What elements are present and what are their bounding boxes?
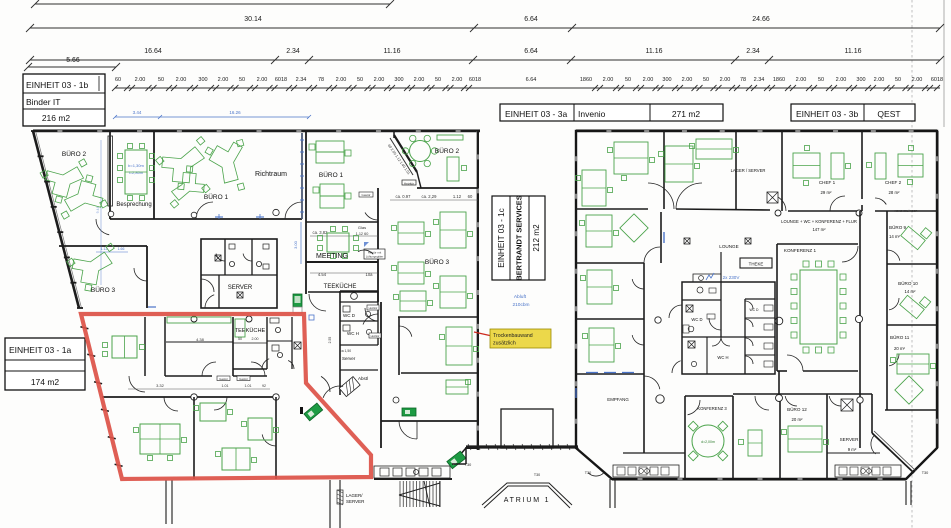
svg-text:SERVER: SERVER — [228, 285, 253, 291]
svg-text:1.12: 1.12 — [453, 194, 462, 199]
svg-text:2.00: 2.00 — [336, 77, 347, 83]
svg-text:9.44: 9.44 — [96, 207, 100, 214]
svg-text:WC H: WC H — [347, 331, 359, 336]
svg-text:Besprechung: Besprechung — [116, 202, 151, 208]
svg-text:2.00: 2.00 — [682, 77, 693, 83]
svg-text:50: 50 — [239, 77, 245, 83]
svg-text:ca. 2,29: ca. 2,29 — [422, 194, 438, 199]
svg-text:ATRIUM 1: ATRIUM 1 — [504, 497, 551, 504]
svg-text:2.00: 2.00 — [836, 77, 847, 83]
svg-text:LAGER / SERVER: LAGER / SERVER — [731, 168, 766, 173]
svg-text:2.55: 2.55 — [328, 337, 332, 344]
svg-text:Trockenbauwand: Trockenbauwand — [493, 333, 533, 339]
svg-text:BÜRO 3: BÜRO 3 — [91, 286, 116, 294]
svg-text:1.66: 1.66 — [118, 247, 125, 251]
svg-text:1.01: 1.01 — [245, 384, 252, 388]
svg-text:Heizkör: Heizkör — [404, 182, 414, 186]
svg-text:2.00: 2.00 — [796, 77, 807, 83]
svg-text:Lüftungsgitter: Lüftungsgitter — [366, 255, 384, 259]
svg-text:Heizkör: Heizkör — [369, 306, 378, 310]
svg-text:ca. 0.97: ca. 0.97 — [396, 194, 412, 199]
svg-text:2.00: 2.00 — [252, 337, 259, 341]
svg-text:BÜRO 1: BÜRO 1 — [319, 171, 344, 179]
svg-text:300: 300 — [394, 77, 403, 83]
svg-text:Invenio: Invenio — [578, 109, 606, 119]
svg-text:2.00: 2.00 — [452, 77, 463, 83]
svg-text:Gastür: Gastür — [239, 377, 248, 381]
svg-text:BÜRO 2: BÜRO 2 — [62, 150, 87, 158]
svg-text:11.16: 11.16 — [845, 48, 862, 55]
svg-text:LAGER/: LAGER/ — [346, 493, 363, 498]
svg-text:WC D: WC D — [749, 308, 759, 312]
svg-text:50: 50 — [625, 77, 631, 83]
svg-text:30.14: 30.14 — [244, 16, 262, 23]
svg-text:T30: T30 — [585, 471, 592, 475]
svg-text:Abstl: Abstl — [358, 376, 368, 381]
svg-text:EINHEIT 03 - 3a: EINHEIT 03 - 3a — [505, 109, 567, 119]
svg-text:KONFERENZ 3: KONFERENZ 3 — [697, 406, 727, 411]
svg-text:6.64: 6.64 — [524, 16, 538, 23]
svg-text:WC H: WC H — [717, 355, 728, 360]
svg-text:11.16: 11.16 — [384, 48, 401, 55]
svg-text:50: 50 — [158, 77, 164, 83]
svg-text:16.26: 16.26 — [229, 110, 241, 115]
svg-text:2.00: 2.00 — [874, 77, 885, 83]
svg-text:50: 50 — [818, 77, 824, 83]
svg-text:6018: 6018 — [275, 77, 287, 83]
svg-text:Richtraum: Richtraum — [255, 171, 287, 178]
svg-text:LOUNGE: LOUNGE — [719, 244, 738, 249]
svg-text:BÜRO 3: BÜRO 3 — [425, 258, 450, 266]
svg-text:2.34: 2.34 — [746, 48, 760, 55]
svg-text:BÜRO 10: BÜRO 10 — [898, 280, 918, 286]
svg-text:KONFERENZ 1: KONFERENZ 1 — [784, 248, 817, 253]
svg-text:LOUNGE + WC + KONFERENZ + FLUR: LOUNGE + WC + KONFERENZ + FLUR — [781, 219, 857, 224]
svg-text:WC D: WC D — [343, 313, 356, 318]
svg-text:2.34: 2.34 — [286, 48, 300, 55]
svg-text:20 m²: 20 m² — [792, 417, 804, 422]
svg-text:1.01: 1.01 — [222, 384, 229, 388]
svg-text:212 m2: 212 m2 — [532, 224, 541, 252]
svg-text:300: 300 — [662, 77, 671, 83]
svg-text:14 m²: 14 m² — [905, 289, 917, 294]
svg-text:2.00: 2.00 — [912, 77, 923, 83]
svg-text:EINHEIT 03 - 1b: EINHEIT 03 - 1b — [26, 80, 88, 90]
svg-text:210cbm: 210cbm — [512, 302, 529, 308]
svg-text:TEEKÜCHE: TEEKÜCHE — [324, 283, 357, 290]
svg-text:2.00: 2.00 — [135, 77, 146, 83]
svg-text:29 m²: 29 m² — [821, 190, 833, 195]
svg-text:Gastür: Gastür — [361, 193, 370, 197]
svg-text:20 m²: 20 m² — [894, 346, 906, 351]
svg-text:14 m²: 14 m² — [889, 234, 901, 239]
svg-text:11.16: 11.16 — [646, 48, 663, 55]
svg-text:271 m2: 271 m2 — [672, 109, 701, 119]
svg-text:EINHEIT 03 - 1c: EINHEIT 03 - 1c — [497, 208, 506, 267]
svg-text:EINHEIT 03 - 1a: EINHEIT 03 - 1a — [9, 345, 71, 355]
svg-text:TEEKÜCHE: TEEKÜCHE — [235, 327, 266, 334]
svg-text:THEKE: THEKE — [749, 262, 764, 267]
svg-text:T30: T30 — [534, 473, 540, 477]
svg-text:2.00: 2.00 — [257, 77, 268, 83]
svg-text:28 m²: 28 m² — [889, 190, 901, 195]
svg-text:1860: 1860 — [773, 77, 785, 83]
svg-text:MEETING: MEETING — [316, 253, 348, 260]
svg-text:6018: 6018 — [931, 77, 943, 83]
svg-text:2.00: 2.00 — [414, 77, 425, 83]
svg-text:50: 50 — [238, 337, 242, 341]
svg-text:BÜRO 9: BÜRO 9 — [889, 224, 907, 230]
svg-text:5.66: 5.66 — [66, 57, 80, 64]
svg-text:BÜRO 2: BÜRO 2 — [435, 147, 460, 155]
svg-text:2.34: 2.34 — [754, 77, 765, 83]
svg-text:2x 230V: 2x 230V — [723, 275, 741, 280]
svg-text:Server: Server — [342, 356, 356, 361]
svg-text:78: 78 — [318, 77, 324, 83]
svg-text:300: 300 — [198, 77, 207, 83]
svg-text:2.00: 2.00 — [374, 77, 385, 83]
svg-text:1860: 1860 — [580, 77, 592, 83]
svg-text:6018: 6018 — [469, 77, 481, 83]
svg-text:SERVER: SERVER — [840, 437, 859, 442]
svg-text:WC D: WC D — [691, 317, 702, 322]
svg-text:78: 78 — [740, 77, 746, 83]
svg-text:50: 50 — [895, 77, 901, 83]
svg-text:b=1,30m: b=1,30m — [128, 163, 144, 168]
svg-text:2.00: 2.00 — [603, 77, 614, 83]
svg-text:60: 60 — [468, 194, 473, 199]
svg-text:6.64: 6.64 — [524, 48, 538, 55]
svg-text:300: 300 — [856, 77, 865, 83]
svg-text:EINHEIT 03 - 3b: EINHEIT 03 - 3b — [796, 109, 858, 119]
svg-text:4.38: 4.38 — [196, 337, 205, 342]
svg-text:3.00: 3.00 — [293, 240, 298, 249]
svg-text:2.00: 2.00 — [643, 77, 654, 83]
svg-text:9 m²: 9 m² — [848, 447, 857, 452]
svg-text:zusätzlich: zusätzlich — [493, 341, 516, 347]
svg-text:Heizkör: Heizkör — [371, 334, 380, 338]
svg-text:6.64: 6.64 — [526, 77, 537, 83]
svg-text:24.66: 24.66 — [752, 16, 770, 23]
svg-text:60: 60 — [115, 77, 121, 83]
svg-text:ca 1,50: ca 1,50 — [340, 349, 351, 353]
svg-text:2.00: 2.00 — [176, 77, 187, 83]
svg-text:Gastür: Gastür — [219, 377, 228, 381]
svg-text:50: 50 — [435, 77, 441, 83]
svg-text:50: 50 — [703, 77, 709, 83]
svg-text:BERTRANDT SERVICES: BERTRANDT SERVICES — [515, 195, 524, 280]
svg-text:CHEF 2: CHEF 2 — [885, 180, 902, 185]
svg-text:2.34: 2.34 — [296, 77, 307, 83]
svg-text:l=2,80m: l=2,80m — [129, 170, 144, 175]
svg-text:KEINE GELÄNDER: KEINE GELÄNDER — [895, 209, 918, 213]
svg-text:EMPFANG: EMPFANG — [607, 397, 629, 402]
svg-text:ca. 3,82: ca. 3,82 — [313, 230, 329, 235]
svg-text:Binder IT: Binder IT — [26, 97, 61, 107]
svg-text:Abluft: Abluft — [514, 294, 527, 300]
svg-text:3.32: 3.32 — [156, 383, 165, 388]
svg-text:2.00: 2.00 — [218, 77, 229, 83]
svg-text:T30: T30 — [922, 471, 929, 475]
svg-text:Glas: Glas — [358, 225, 366, 230]
svg-text:BÜRO 1: BÜRO 1 — [204, 193, 229, 201]
svg-text:BÜRO 12: BÜRO 12 — [787, 406, 807, 412]
svg-text:174 m2: 174 m2 — [31, 377, 60, 387]
svg-text:SERVER: SERVER — [346, 499, 365, 504]
svg-text:BÜRO 11: BÜRO 11 — [890, 334, 910, 340]
svg-text:50: 50 — [357, 77, 363, 83]
svg-text:16.64: 16.64 — [144, 48, 162, 55]
svg-text:d=2,00m: d=2,00m — [701, 440, 715, 444]
svg-text:CHEF 1: CHEF 1 — [819, 180, 836, 185]
svg-text:QEST: QEST — [877, 109, 900, 119]
svg-text:216 m2: 216 m2 — [42, 113, 71, 123]
svg-text:2.00: 2.00 — [720, 77, 731, 83]
svg-text:147 m²: 147 m² — [812, 227, 826, 232]
svg-text:92: 92 — [262, 384, 266, 388]
svg-text:3.44: 3.44 — [133, 110, 142, 115]
